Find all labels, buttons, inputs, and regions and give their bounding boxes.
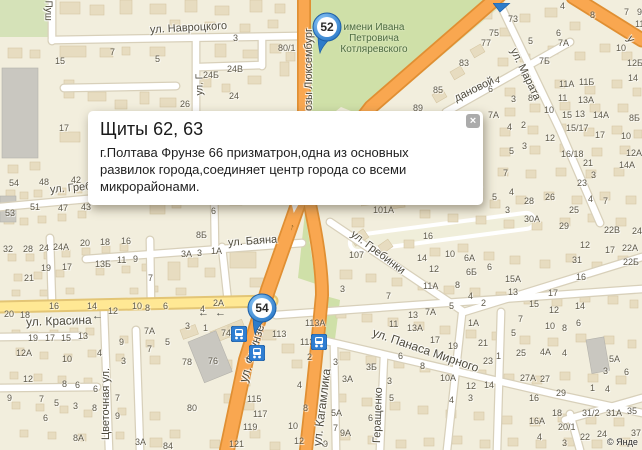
house-number: 13 [508, 287, 518, 297]
house-number: 7А [144, 326, 155, 336]
house-number: 115 [247, 394, 261, 404]
house-number: 10 [445, 249, 455, 259]
house-number: 117 [253, 409, 267, 419]
house-number: 16 [529, 393, 539, 403]
house-number: 48 [39, 177, 49, 187]
house-number: 12 [108, 306, 118, 316]
house-number: 3 [603, 366, 608, 376]
house-number: 12 [549, 305, 559, 315]
house-number: 28 [23, 244, 33, 254]
house-number: 3 [121, 356, 126, 366]
balloon-popup: × Щиты 62, 63 г.Полтава Фрунзе 66 призма… [88, 111, 483, 205]
house-number: 12 [429, 264, 439, 274]
house-number: 3Б [366, 362, 377, 372]
house-number: 1А [211, 246, 222, 256]
map-marker-54[interactable]: 54 [244, 292, 280, 343]
house-number: 5 [528, 36, 533, 46]
street-label: Геращенко [371, 387, 385, 443]
house-number: 9 [7, 393, 12, 403]
balloon-body-text: г.Полтава Фрунзе 66 призматрон,одна из о… [100, 144, 457, 195]
house-number: 121 [229, 439, 244, 449]
house-number: 23 [577, 178, 587, 188]
balloon-close-icon[interactable]: × [466, 114, 480, 128]
house-number: 13А [407, 323, 423, 333]
one-way-arrow: ← [92, 310, 103, 322]
house-number: 7Б [539, 56, 550, 66]
house-number: 10 [62, 354, 72, 364]
house-number: 13А [578, 95, 594, 105]
house-number: 29 [559, 221, 569, 231]
house-number: 16 [121, 236, 131, 246]
house-number: 6 [556, 28, 561, 38]
house-number: 3 [185, 321, 190, 331]
house-number: 17 [605, 245, 615, 255]
house-number: 5 [54, 398, 59, 408]
house-number: 4 [560, 1, 565, 11]
house-number: 10 [616, 43, 626, 53]
house-number: 14 [575, 301, 585, 311]
house-number: 4 [605, 384, 610, 394]
house-number: 12 [545, 133, 555, 143]
house-number: 7 [386, 291, 391, 301]
house-number: 28 [524, 196, 534, 206]
house-number: 7 [518, 314, 523, 324]
house-number: 27 [540, 374, 550, 384]
house-number: 5 [511, 328, 516, 338]
house-number: 51 [30, 202, 40, 212]
house-number: 80/1 [278, 43, 296, 53]
house-number: 31/2 [582, 408, 600, 418]
house-number: 113А [305, 318, 325, 328]
house-number: 75 [489, 28, 499, 38]
house-number: 20/1 [558, 422, 576, 432]
house-number: 6А [464, 253, 475, 263]
house-number: 6 [43, 413, 48, 423]
house-number: 22А [622, 243, 638, 253]
house-number: 6 [93, 384, 98, 394]
house-number: 7 [147, 344, 152, 354]
house-number: 74 [221, 328, 231, 338]
house-number: 24А [53, 242, 69, 252]
house-number: 16А [529, 416, 545, 426]
house-number: 7А [488, 110, 499, 120]
house-number: 8 [590, 10, 595, 20]
house-number: 7 [148, 273, 153, 283]
house-number: 17 [595, 130, 605, 140]
house-number: 2 [521, 120, 526, 130]
house-number: 7 [39, 394, 44, 404]
house-number: 4 [507, 122, 512, 132]
house-number: 6 [487, 262, 492, 272]
house-number: 7А [558, 38, 569, 48]
house-number: 6 [163, 301, 168, 311]
house-number: 3 [333, 357, 338, 367]
house-number: 14А [593, 110, 609, 120]
house-number: 23 [483, 356, 493, 366]
house-number: 15/17 [566, 123, 589, 133]
house-number: 10А [440, 373, 456, 383]
house-number: 7 [110, 47, 115, 57]
house-number: 20 [80, 238, 90, 248]
house-number: 6 [624, 367, 629, 377]
house-number: 8 [62, 379, 67, 389]
house-number: 3 [197, 248, 202, 258]
house-number: 3 [233, 33, 238, 43]
house-number: 54 [9, 178, 19, 188]
house-number: 8Б [196, 230, 207, 240]
house-number: 7А [425, 307, 436, 317]
house-number: 1 [590, 383, 595, 393]
house-number: 22 [580, 432, 590, 442]
house-number: 3А [135, 437, 146, 447]
house-number: 83 [459, 58, 469, 68]
map-attribution: © Янде [607, 437, 638, 447]
house-number: 31 [572, 255, 582, 265]
house-number: 10 [132, 301, 142, 311]
house-number: 24 [597, 429, 607, 439]
house-number: 25 [516, 348, 526, 358]
house-number: 5 [155, 54, 160, 64]
house-number: 13Б [95, 259, 111, 269]
house-number: 2 [481, 298, 486, 308]
house-number: 3 [387, 376, 392, 386]
house-number: 9 [637, 7, 642, 17]
house-number: 6 [211, 206, 216, 216]
house-number: 80 [187, 403, 197, 413]
house-number: 9 [115, 411, 120, 421]
house-number: 10 [544, 105, 554, 115]
house-number: 18 [100, 237, 110, 247]
one-way-arrow: ← [198, 307, 209, 319]
house-number: 16/18 [561, 149, 584, 159]
house-number: 6 [398, 351, 403, 361]
house-number: 3 [505, 205, 510, 215]
house-number: 4 [588, 194, 593, 204]
house-number: 101А [373, 205, 394, 215]
house-number: 2 [307, 352, 312, 362]
house-number: 17 [62, 262, 72, 272]
house-number: 3 [73, 401, 78, 411]
house-number: 14 [484, 380, 494, 390]
house-number: 8Б [629, 113, 640, 123]
house-number: 14А [619, 160, 635, 170]
house-number: 1 [496, 351, 501, 361]
house-number: 16 [423, 231, 433, 241]
street-label: ул. Г [195, 74, 206, 96]
house-number: 30А [524, 214, 540, 224]
house-number: 7 [333, 423, 338, 433]
house-number: 3 [522, 141, 527, 151]
house-number: 4 [468, 291, 473, 301]
house-number: 14 [628, 73, 638, 83]
house-number: 10 [621, 131, 631, 141]
house-number: 11 [635, 19, 642, 29]
house-number: 11 [558, 93, 567, 103]
house-number: 13 [408, 310, 418, 320]
house-number: 12 [294, 436, 304, 446]
house-number: 15 [61, 333, 71, 343]
house-number: 15 [55, 56, 65, 66]
map-marker-52[interactable]: 52 [309, 11, 345, 62]
svg-text:54: 54 [255, 301, 269, 315]
house-number: 1 [203, 323, 208, 333]
house-number: 10 [545, 321, 555, 331]
house-number: 5А [609, 354, 620, 364]
house-number: 8 [145, 303, 150, 313]
house-number: 26 [545, 192, 555, 202]
house-number: 7 [624, 7, 629, 17]
house-number: 78 [182, 357, 192, 367]
street-label: ул. Красина [26, 313, 92, 329]
house-number: 6 [576, 318, 581, 328]
house-number: 25 [569, 205, 579, 215]
house-number: 12 [580, 240, 590, 250]
house-number: 32 [3, 244, 13, 254]
house-number: 22В [604, 225, 620, 235]
house-number: 8 [92, 403, 97, 413]
house-number: 16 [576, 272, 586, 282]
house-number: 15 [562, 110, 572, 120]
house-number: 3 [511, 94, 516, 104]
house-number: 15А [505, 274, 521, 284]
house-number: 31А [606, 408, 622, 418]
house-number: 24 [229, 91, 239, 101]
house-number: 76 [208, 356, 218, 366]
house-number: 24 [39, 243, 49, 253]
house-number: 5 [492, 192, 497, 202]
house-number: 15 [529, 299, 539, 309]
house-number: 11Б [579, 77, 594, 87]
street-label: Цветочная ул. [100, 368, 112, 440]
house-number: 16 [49, 301, 59, 311]
house-number: 21 [24, 273, 34, 283]
house-number: 21 [583, 158, 593, 168]
house-number: 11А [559, 79, 574, 89]
house-number: 47 [58, 203, 68, 213]
street-label: Пуш [43, 1, 54, 21]
house-number: 5 [449, 301, 454, 311]
house-number: 9 [119, 337, 124, 347]
house-number: 17 [430, 335, 440, 345]
house-number: 5 [165, 337, 170, 347]
house-number: 20 [4, 309, 14, 319]
house-number: 1А [468, 318, 479, 328]
house-number: 13 [78, 331, 88, 341]
house-number: 7 [603, 196, 608, 206]
house-number: 26 [180, 99, 190, 109]
house-number: 22Б [623, 257, 639, 267]
house-number: 3 [562, 438, 567, 448]
house-number: 9 [133, 254, 138, 264]
house-number: 35 [627, 406, 637, 416]
house-number: 11 [117, 255, 126, 265]
svg-text:52: 52 [320, 20, 334, 34]
house-number: 4 [97, 348, 102, 358]
house-number: 8 [455, 280, 460, 290]
house-number: 4 [509, 187, 514, 197]
house-number: 18 [552, 408, 562, 418]
house-number: 13 [575, 109, 585, 119]
house-number: 11А [423, 281, 438, 291]
transit-stop-icon[interactable] [249, 345, 265, 361]
house-number: 9А [340, 428, 351, 438]
house-number: 6 [75, 380, 80, 390]
house-number: 24 [632, 226, 642, 236]
house-number: 3 [468, 393, 473, 403]
house-number: 12А [16, 348, 32, 358]
house-number: 11 [389, 319, 398, 329]
house-number: 14 [417, 253, 427, 263]
house-number: 19 [41, 263, 51, 273]
house-number: 21 [478, 338, 488, 348]
transit-stop-icon[interactable] [311, 334, 327, 350]
house-number: 29 [556, 388, 566, 398]
house-number: 7 [503, 168, 508, 178]
house-number: 19 [448, 341, 458, 351]
house-number: 84 [163, 441, 173, 450]
house-number: 24В [227, 64, 243, 74]
house-number: 5 [509, 146, 514, 156]
house-number: 19 [28, 333, 38, 343]
balloon-title: Щиты 62, 63 [100, 119, 457, 140]
house-number: 4 [562, 348, 567, 358]
house-number: 17 [548, 288, 558, 298]
house-number: 5 [389, 393, 394, 403]
house-number: 17 [45, 333, 55, 343]
house-number: 3 [591, 170, 596, 180]
house-number: 4А [540, 347, 551, 357]
house-number: 4 [297, 380, 302, 390]
house-number: 12Б [627, 58, 642, 68]
map-canvas[interactable]: ул. НавроцкогоПушул. Гозы Люксембургул. … [0, 0, 642, 450]
house-number: 8 [562, 323, 567, 333]
house-number: 3А [342, 374, 353, 384]
house-number: 4 [537, 432, 542, 442]
house-number: 3А [181, 249, 192, 259]
house-number: 53 [5, 208, 15, 218]
house-number: 3 [340, 284, 345, 294]
one-way-arrow: ← [215, 307, 226, 319]
house-number: 5А [331, 408, 342, 418]
house-number: 17 [59, 123, 69, 133]
house-number: 12 [466, 381, 476, 391]
house-number: 8 [420, 361, 425, 371]
house-number: 27А [520, 373, 536, 383]
house-number: 8А [73, 433, 84, 443]
house-number: 4 [449, 395, 454, 405]
map-marker-partial[interactable] [493, 0, 511, 18]
house-number: 12 [23, 374, 33, 384]
house-number: 10 [288, 421, 298, 431]
house-number: 8 [303, 403, 308, 413]
house-number: 119 [243, 422, 257, 432]
house-number: 85 [433, 85, 443, 95]
house-number: 6Б [466, 267, 477, 277]
house-number: 12А [626, 148, 642, 158]
house-number: 7 [115, 393, 120, 403]
house-number: 107 [349, 250, 364, 260]
house-number: 77 [481, 38, 491, 48]
